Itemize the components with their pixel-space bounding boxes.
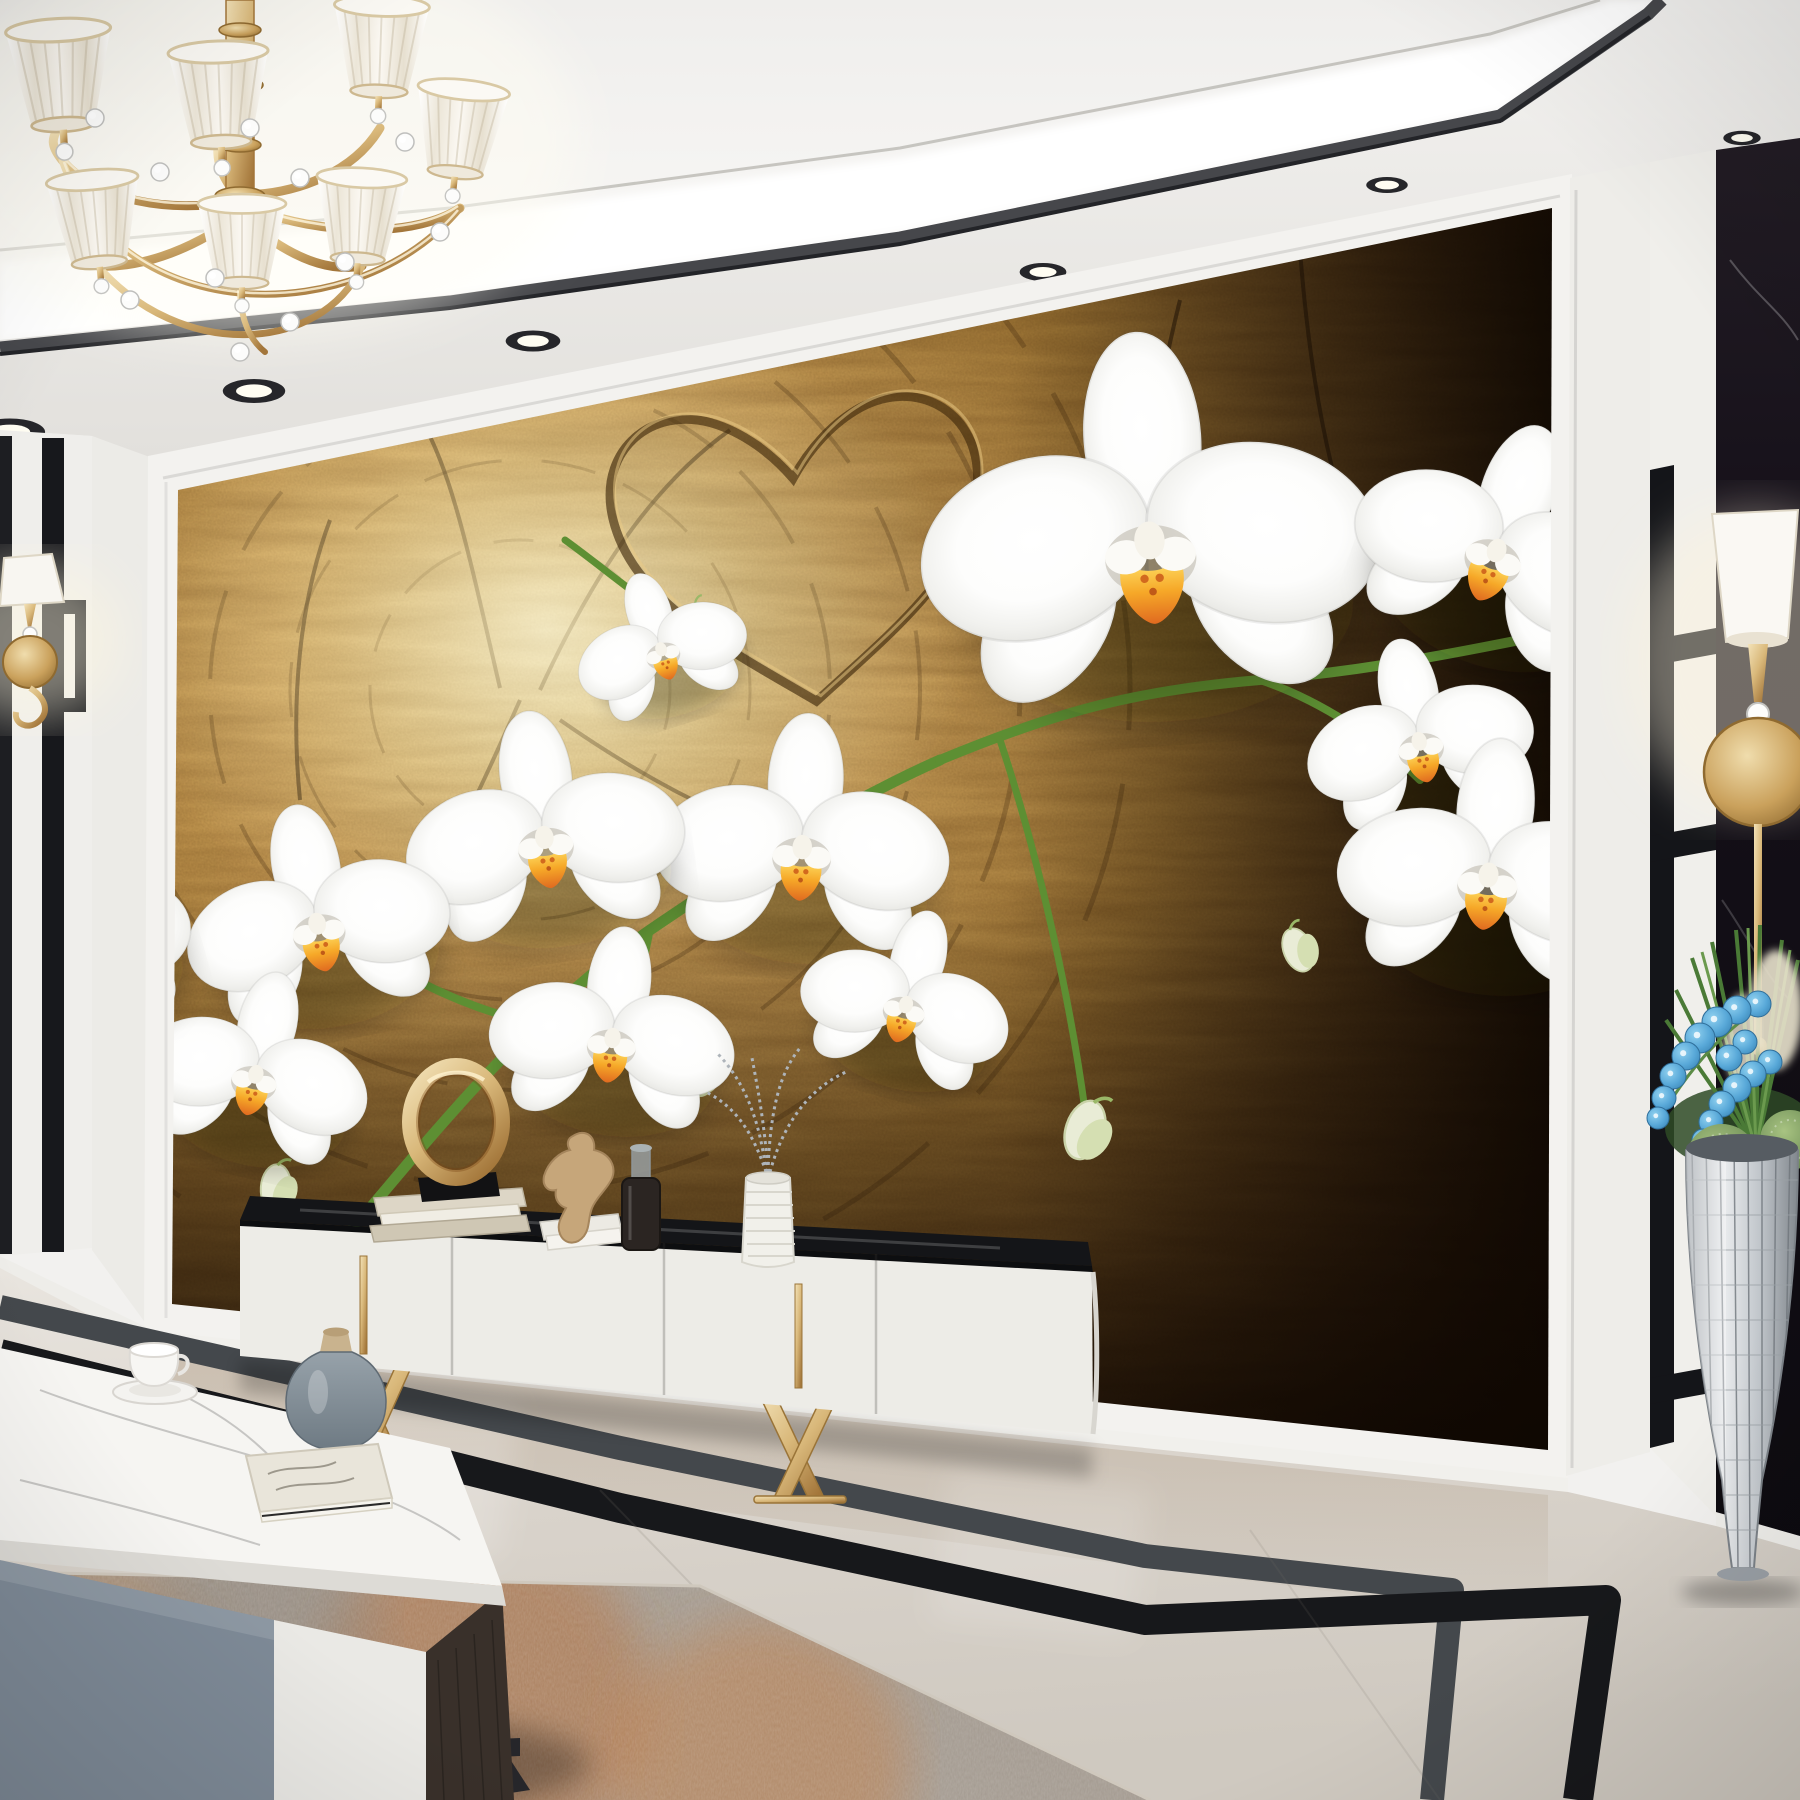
vignette bbox=[0, 0, 1800, 1800]
living-room-render bbox=[0, 0, 1800, 1800]
